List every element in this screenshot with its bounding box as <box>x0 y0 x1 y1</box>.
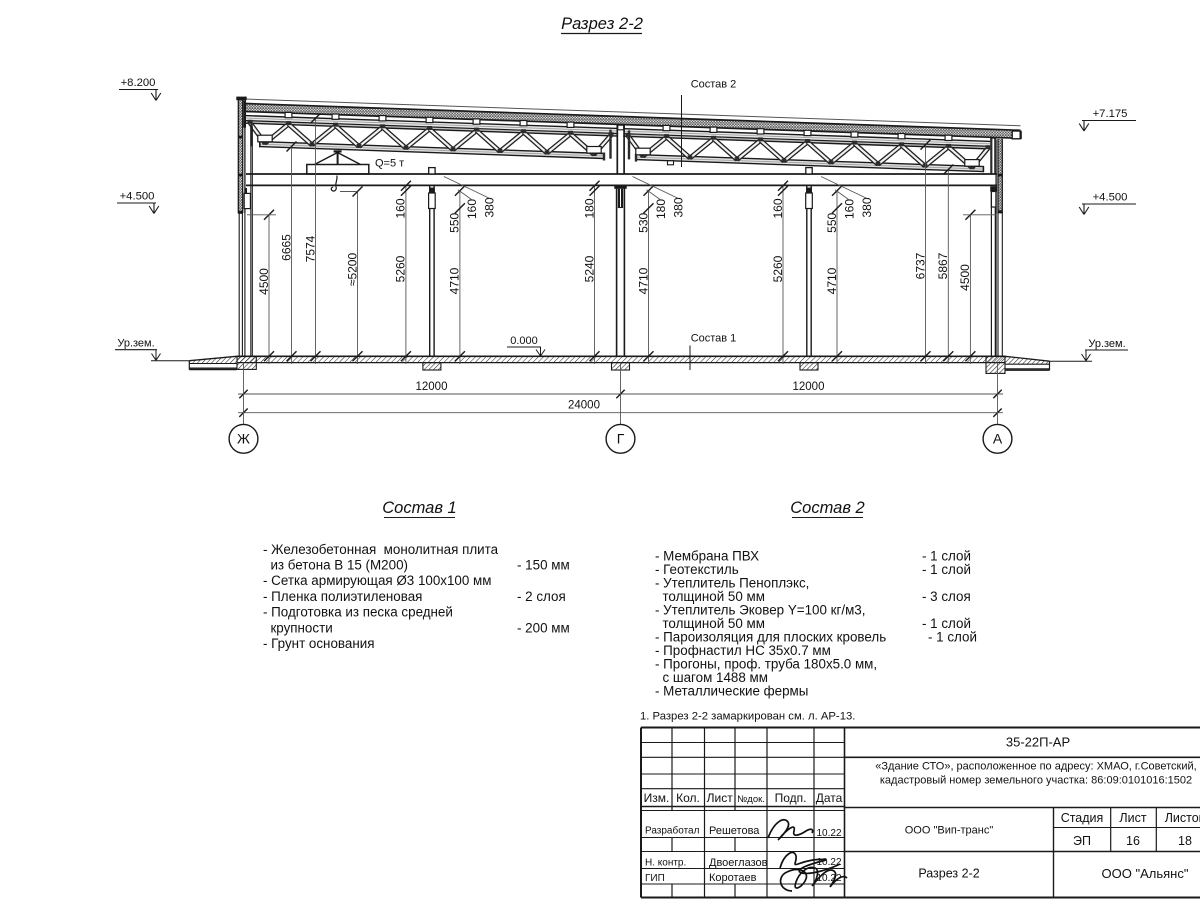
svg-text:- 1 слой: - 1 слой <box>922 562 971 577</box>
svg-text:160: 160 <box>842 199 856 219</box>
svg-text:ЭП: ЭП <box>1073 834 1091 848</box>
svg-text:160: 160 <box>771 198 785 218</box>
svg-text:5260: 5260 <box>394 255 408 282</box>
svg-text:1. Разрез 2-2 замаркирован см.: 1. Разрез 2-2 замаркирован см. л. АР-13. <box>640 711 855 723</box>
svg-text:- Металлические фермы: - Металлические фермы <box>655 683 808 698</box>
svg-text:- 150 мм: - 150 мм <box>517 558 570 573</box>
svg-text:Дата: Дата <box>816 791 843 805</box>
svg-text:16: 16 <box>1126 834 1140 848</box>
svg-text:- 200 мм: - 200 мм <box>517 620 570 635</box>
svg-text:Ур.зем.: Ур.зем. <box>1088 338 1125 350</box>
svg-text:Г: Г <box>617 431 625 447</box>
svg-text:+4.500: +4.500 <box>1093 192 1128 204</box>
svg-text:+7.175: +7.175 <box>1093 108 1128 120</box>
svg-text:ООО "Вип-транс": ООО "Вип-транс" <box>905 825 994 837</box>
svg-text:7574: 7574 <box>303 235 317 262</box>
svg-text:380: 380 <box>671 197 685 217</box>
svg-text:Коротаев: Коротаев <box>709 872 757 884</box>
svg-text:- Подготовка из песка средней: - Подготовка из песка средней <box>263 605 453 620</box>
svg-text:Решетова: Решетова <box>709 825 760 837</box>
svg-text:6737: 6737 <box>913 252 927 279</box>
svg-text:530: 530 <box>636 212 650 232</box>
svg-text:550: 550 <box>448 212 462 232</box>
svg-text:- 3 слоя: - 3 слоя <box>922 589 971 604</box>
svg-text:Состав 2: Состав 2 <box>691 79 737 91</box>
svg-text:≈5200: ≈5200 <box>345 253 359 287</box>
svg-text:Q=5 т: Q=5 т <box>375 158 404 170</box>
svg-text:0.000: 0.000 <box>510 335 538 347</box>
svg-text:- 1 слой: - 1 слой <box>928 629 977 644</box>
svg-text:4500: 4500 <box>257 268 271 295</box>
svg-text:крупности: крупности <box>263 620 333 635</box>
svg-text:550: 550 <box>825 212 839 232</box>
svg-text:Лист: Лист <box>707 791 734 805</box>
svg-text:12000: 12000 <box>416 381 448 393</box>
svg-text:24000: 24000 <box>568 400 600 412</box>
svg-text:Состав 1: Состав 1 <box>382 499 456 517</box>
svg-text:Подп.: Подп. <box>775 791 807 805</box>
svg-text:Ур.зем.: Ур.зем. <box>117 338 154 350</box>
svg-text:- 2 слоя: - 2 слоя <box>517 589 566 604</box>
svg-text:180: 180 <box>582 198 596 218</box>
svg-text:ООО "Альянс": ООО "Альянс" <box>1102 866 1189 881</box>
svg-text:4500: 4500 <box>958 264 972 291</box>
svg-text:Состав 1: Состав 1 <box>691 333 737 345</box>
svg-text:Изм.: Изм. <box>644 791 670 805</box>
svg-text:Разрез 2-2: Разрез 2-2 <box>561 15 643 33</box>
svg-text:180: 180 <box>654 199 668 219</box>
svg-text:4710: 4710 <box>448 267 462 294</box>
svg-text:4710: 4710 <box>636 267 650 294</box>
svg-text:Листов: Листов <box>1165 811 1200 825</box>
svg-text:«Здание СТО», расположенное по: «Здание СТО», расположенное по адресу: Х… <box>875 761 1196 773</box>
svg-text:Разработал: Разработал <box>645 825 700 837</box>
svg-text:ГИП: ГИП <box>645 873 665 884</box>
svg-text:Разрез 2-2: Разрез 2-2 <box>918 867 979 881</box>
svg-text:- Сетка армирующая Ø3 100х100: - Сетка армирующая Ø3 100х100 мм <box>263 573 491 588</box>
svg-text:Н. контр.: Н. контр. <box>645 858 686 869</box>
svg-text:- Грунт основания: - Грунт основания <box>263 636 374 651</box>
svg-text:6665: 6665 <box>279 234 293 261</box>
svg-text:5240: 5240 <box>582 255 596 282</box>
svg-text:- Пленка полиэтиленовая: - Пленка полиэтиленовая <box>263 589 422 604</box>
svg-text:кадастровый номер земельного у: кадастровый номер земельного участка: 86… <box>880 775 1192 787</box>
svg-text:Ж: Ж <box>237 431 250 447</box>
svg-text:Кол.: Кол. <box>676 791 700 805</box>
svg-text:12000: 12000 <box>793 381 825 393</box>
svg-text:+4.500: +4.500 <box>120 191 155 203</box>
svg-text:5260: 5260 <box>771 255 785 282</box>
svg-text:18: 18 <box>1178 834 1192 848</box>
svg-text:380: 380 <box>483 197 497 217</box>
svg-text:380: 380 <box>860 197 874 217</box>
svg-text:160: 160 <box>394 198 408 218</box>
svg-text:160: 160 <box>465 199 479 219</box>
svg-text:5867: 5867 <box>936 252 950 279</box>
svg-text:4710: 4710 <box>825 267 839 294</box>
svg-text:Лист: Лист <box>1119 811 1146 825</box>
svg-text:+8.200: +8.200 <box>121 77 156 89</box>
svg-text:Двоеглазов: Двоеглазов <box>709 857 768 869</box>
svg-text:№док.: №док. <box>737 794 765 805</box>
svg-text:- Железобетонная монолитная п: - Железобетонная монолитная плита <box>263 542 499 557</box>
svg-text:10.22: 10.22 <box>816 828 841 839</box>
svg-text:35-22П-АР: 35-22П-АР <box>1006 735 1070 750</box>
svg-text:Стадия: Стадия <box>1061 811 1104 825</box>
svg-text:Состав 2: Состав 2 <box>790 499 864 517</box>
svg-text:А: А <box>993 431 1003 447</box>
svg-text:из бетона В 15 (М200): из бетона В 15 (М200) <box>263 558 408 573</box>
